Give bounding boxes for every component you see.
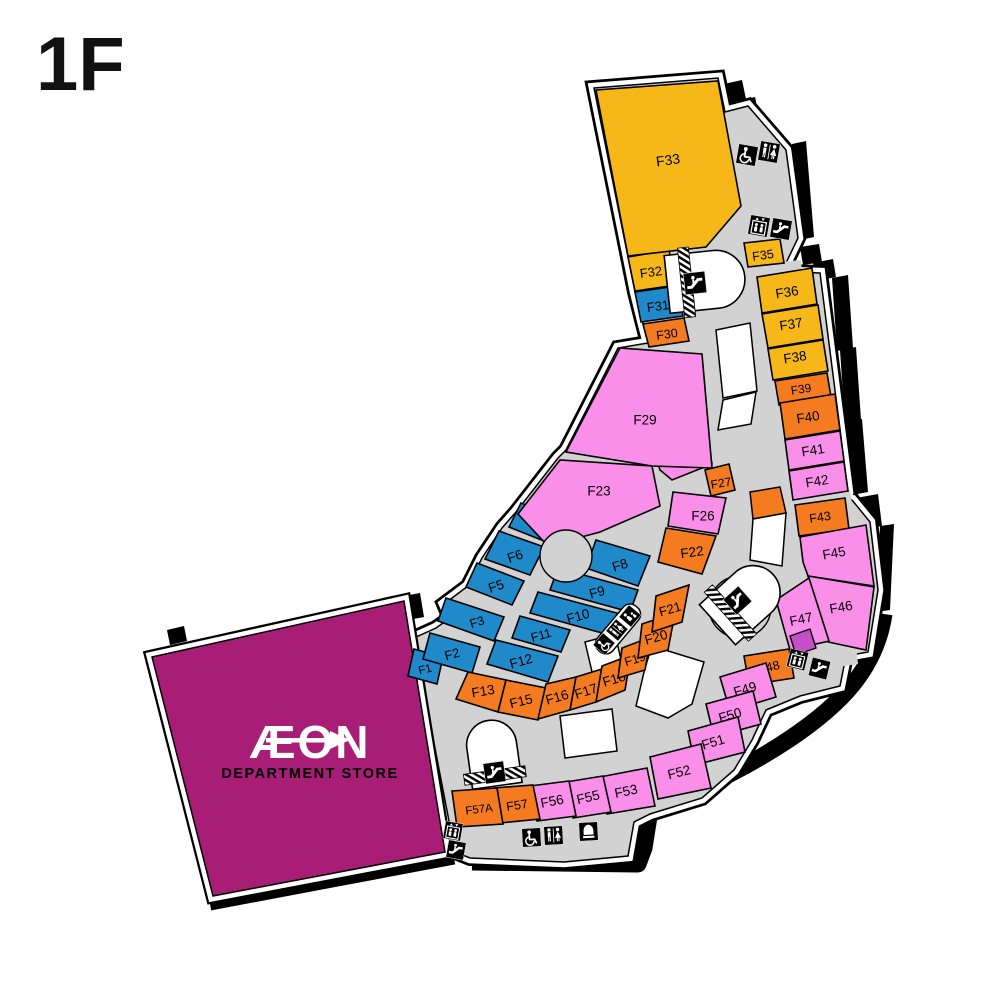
- floor-label: 1F: [36, 22, 125, 107]
- unit-label-F33: F33: [655, 150, 681, 169]
- elevator-bottom-icon: [443, 821, 464, 842]
- aeon-logo-swoosh: [266, 738, 332, 743]
- shadow-tick: [167, 626, 187, 645]
- unit-label-F35: F35: [751, 247, 774, 264]
- aeon-subtitle: DEPARTMENT STORE: [221, 766, 398, 782]
- toilets-bottom-icon: [544, 826, 564, 846]
- kiosk: [560, 709, 617, 758]
- unit-label-F31: F31: [646, 297, 670, 315]
- toilets-top-icon: [757, 140, 780, 163]
- wheelchair-top-icon: [735, 143, 758, 166]
- wheelchair-bottom-icon: [522, 828, 542, 848]
- kiosk: [750, 513, 786, 566]
- escalator-top-icon: [769, 217, 792, 240]
- kiosk: [716, 323, 757, 398]
- unit-label-F23: F23: [587, 484, 610, 499]
- unit-label-F26: F26: [691, 509, 714, 524]
- escalator-lower-core-icon: [483, 761, 507, 785]
- unit-label-F22: F22: [679, 543, 704, 561]
- mall-floor-map: F1F2F3F5F6F7F8F9F10F11F12F13F15F16F17F18…: [0, 0, 1000, 1000]
- shadow-segment: [800, 244, 822, 265]
- elevator-top-icon: [747, 214, 770, 237]
- roundabout-court: [540, 530, 592, 582]
- unit-label-F32: F32: [639, 263, 663, 281]
- unit-label-F29: F29: [633, 413, 656, 428]
- escalator-bottom-icon: [446, 840, 467, 861]
- prayer-room-bottom-icon: [579, 822, 599, 842]
- escalator-upper-core-icon: [683, 271, 707, 295]
- floor-plan-page: F1F2F3F5F6F7F8F9F10F11F12F13F15F16F17F18…: [0, 0, 1000, 1000]
- unit-label-F30: F30: [655, 326, 678, 343]
